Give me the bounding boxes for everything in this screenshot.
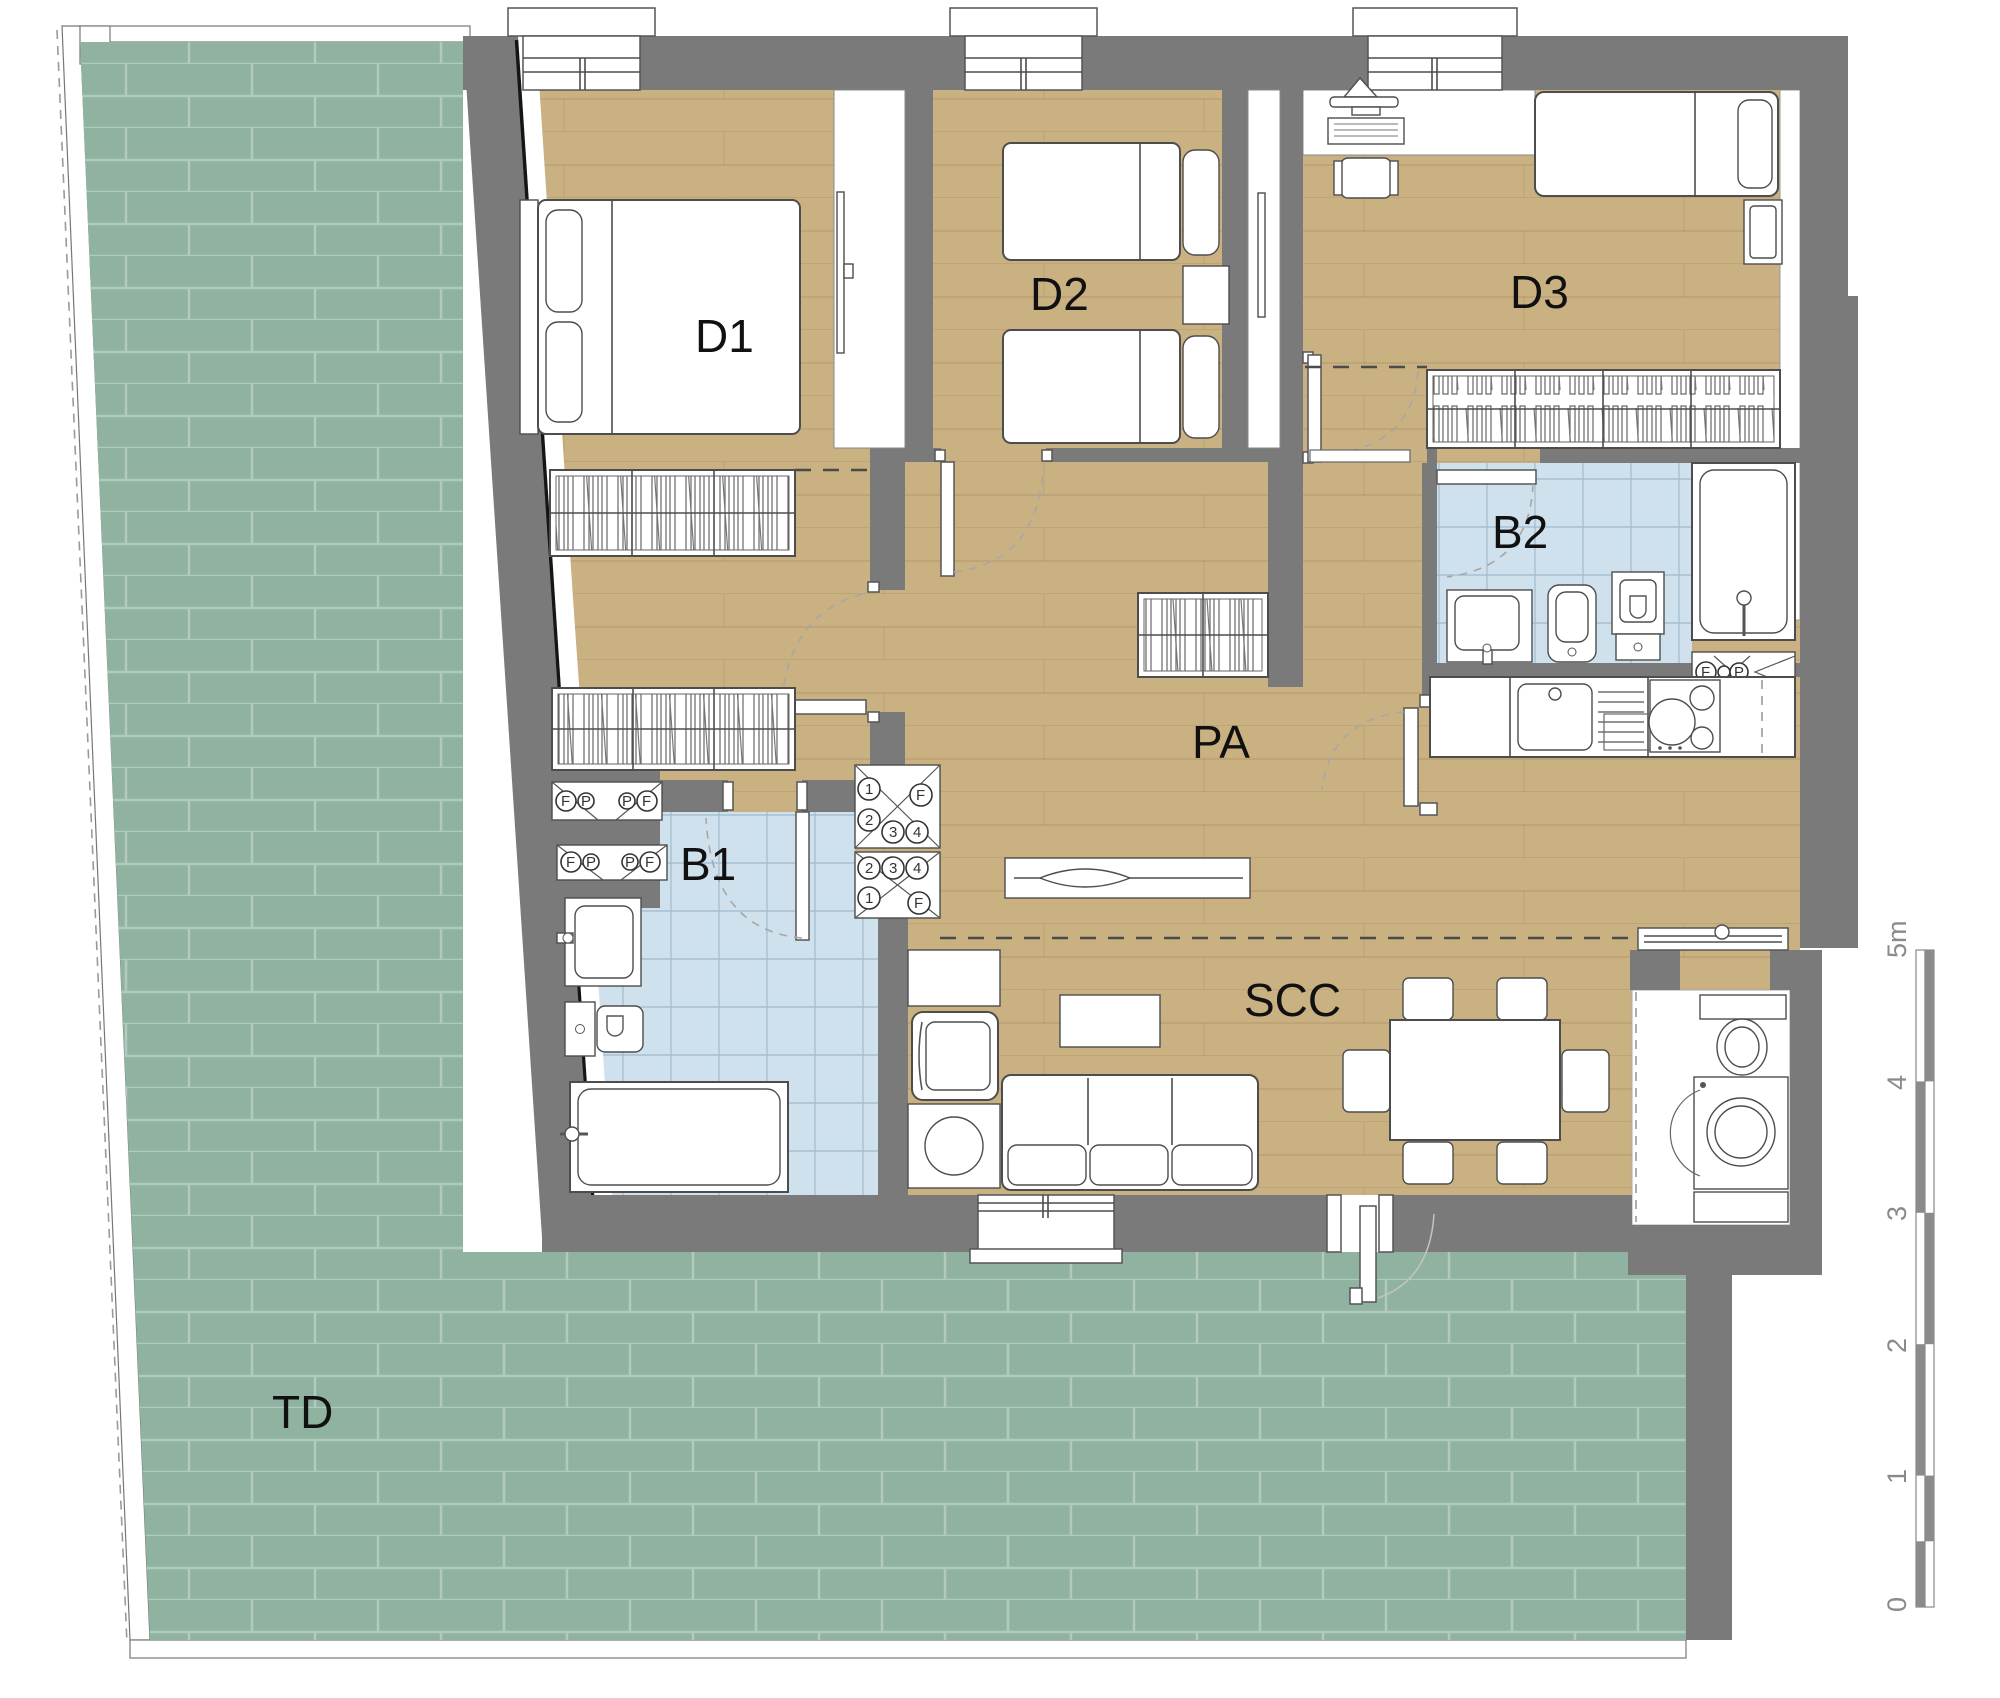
scc-cabinet-top (908, 950, 1000, 1006)
window-d2 (950, 8, 1097, 90)
d1-pocket-door-handle (844, 264, 853, 278)
utility-shelf (1694, 1192, 1788, 1222)
wall-d3-sill (1427, 448, 1437, 463)
room-label-d1: D1 (695, 310, 754, 362)
niche-upper-p1: P (581, 793, 591, 810)
wall-top-2 (640, 36, 965, 90)
dining-table (1390, 1020, 1560, 1140)
d2-pocket-door (1258, 193, 1265, 317)
dining-chair-4 (1562, 1050, 1609, 1112)
b1-toilet (565, 1002, 643, 1056)
b1-sink (557, 898, 641, 986)
window-d3 (1353, 8, 1517, 90)
d3-nightstand (1744, 200, 1782, 264)
niche-upper-f2: F (642, 793, 651, 810)
b2-toilet (1612, 572, 1664, 660)
scc-armchair (912, 1012, 998, 1100)
d3-single-bed (1535, 92, 1778, 196)
wall-utility-right (1790, 950, 1822, 1225)
niche-lower-f1: F (566, 854, 575, 871)
window-d1 (508, 8, 655, 90)
panel-upper-1: 1 (865, 781, 873, 798)
niche-upper-p2: P (622, 793, 632, 810)
d1-pillow-2 (546, 322, 582, 422)
wall-utility-bottom (1628, 1225, 1822, 1275)
scale-4: 4 (1882, 1075, 1912, 1090)
dining-chair-6 (1497, 1142, 1547, 1184)
kitchen-cooktop (1649, 680, 1720, 752)
pa-meter-panel-upper: 1 2 3 4 F (855, 765, 940, 848)
kitchen (1430, 677, 1795, 757)
d2-nightstand (1183, 266, 1229, 324)
d3-keyboard (1328, 118, 1404, 144)
panel-upper-3: 3 (889, 824, 897, 841)
panel-lower-f: F (914, 895, 923, 912)
b2-shower-bath (1692, 463, 1795, 640)
scc-cabinet-bottom (908, 1104, 1000, 1188)
dining-chair-2 (1497, 978, 1547, 1020)
panel-upper-2: 2 (865, 812, 873, 829)
panel-lower-2: 2 (865, 860, 873, 877)
niche-lower-p2: P (625, 854, 635, 871)
d2-bed-1 (1003, 143, 1219, 260)
niche-lower-f2: F (645, 854, 654, 871)
floor-plan: TD (0, 0, 2000, 1698)
window-scc (970, 1195, 1122, 1263)
wall-b1-top-1 (660, 780, 728, 812)
b2-bidet (1548, 585, 1596, 662)
dining-chair-3 (1343, 1050, 1390, 1112)
scale-3: 3 (1882, 1206, 1912, 1221)
dining-chair-1 (1403, 978, 1453, 1020)
room-label-b2: B2 (1492, 506, 1548, 558)
pa-closet (1138, 593, 1268, 677)
scale-5m: 5m (1882, 920, 1912, 958)
scale-1: 1 (1882, 1469, 1912, 1484)
wall-right-step (1845, 296, 1858, 948)
d1-double-bed (520, 200, 800, 434)
room-label-td: TD (272, 1386, 333, 1438)
dining-chair-5 (1403, 1142, 1453, 1184)
wall-top-4 (1502, 36, 1848, 90)
wall-d2-south-1 (870, 448, 941, 462)
niche-meter-box-lower: F P P F (557, 845, 667, 880)
d1-pillow-1 (546, 210, 582, 312)
panel-upper-4: 4 (913, 824, 921, 841)
room-label-b1: B1 (680, 838, 736, 890)
panel-lower-3: 3 (889, 860, 897, 877)
niche-lower-p1: P (586, 854, 596, 871)
panel-lower-4: 4 (913, 860, 921, 877)
room-label-scc: SCC (1244, 974, 1341, 1026)
terrace-parapet-top (78, 26, 470, 42)
wall-d1-d2 (905, 90, 933, 448)
wall-d2-south-2 (1046, 448, 1280, 462)
room-label-d3: D3 (1510, 266, 1569, 318)
wall-utility-top-1 (1630, 950, 1680, 990)
scc-sofa (1002, 1075, 1258, 1190)
b2-sink (1447, 590, 1532, 664)
threshold-pa-d3 (1310, 450, 1410, 462)
d1-wardrobe-1 (550, 470, 795, 556)
d2-bed-2 (1003, 330, 1219, 443)
pa-meter-panel-lower: 2 3 4 1 F (855, 852, 940, 918)
wall-pa-corridor (1268, 430, 1303, 687)
panel-lower-1: 1 (865, 890, 873, 907)
pa-sideboard (1005, 858, 1250, 898)
wall-bottom-2 (1114, 1195, 1327, 1252)
d1-headboard (520, 200, 538, 434)
niche-upper-f1: F (561, 793, 570, 810)
wall-terrace-east (1686, 1275, 1732, 1640)
room-label-pa: PA (1192, 716, 1250, 768)
scc-coffee-table (1060, 995, 1160, 1047)
wall-top-3 (1082, 36, 1368, 90)
terrace-parapet-bottom (130, 1640, 1686, 1658)
wall-right (1800, 36, 1848, 948)
wall-d3-left (1280, 90, 1303, 450)
floor-plan-canvas: TD (0, 0, 2000, 1698)
scale-0: 0 (1882, 1597, 1912, 1612)
scale-bar: 0 1 2 3 4 5m (1882, 920, 1934, 1612)
d3-desk-chair (1334, 158, 1398, 198)
panel-upper-f: F (916, 787, 925, 804)
door-entrance-sliding (1638, 925, 1788, 950)
d1-wardrobe-2 (552, 688, 795, 770)
wall-b1-right (878, 918, 908, 1195)
d2-pillow-2 (1183, 336, 1219, 438)
room-label-d2: D2 (1030, 268, 1089, 320)
d2-pillow-1 (1183, 150, 1219, 255)
niche-meter-box-upper: F P P F (552, 782, 662, 820)
kitchen-counter (1430, 677, 1795, 757)
wall-bottom-1 (542, 1195, 978, 1252)
wall-d3-b2 (1540, 448, 1800, 463)
b1-bathtub (560, 1082, 788, 1192)
d1-pocket-door (837, 192, 844, 353)
wall-d1-pa-1 (870, 462, 905, 590)
scale-2: 2 (1882, 1338, 1912, 1353)
wall-b2-left (1422, 463, 1437, 695)
d3-pillow (1738, 100, 1772, 188)
d3-wardrobe (1427, 370, 1780, 448)
